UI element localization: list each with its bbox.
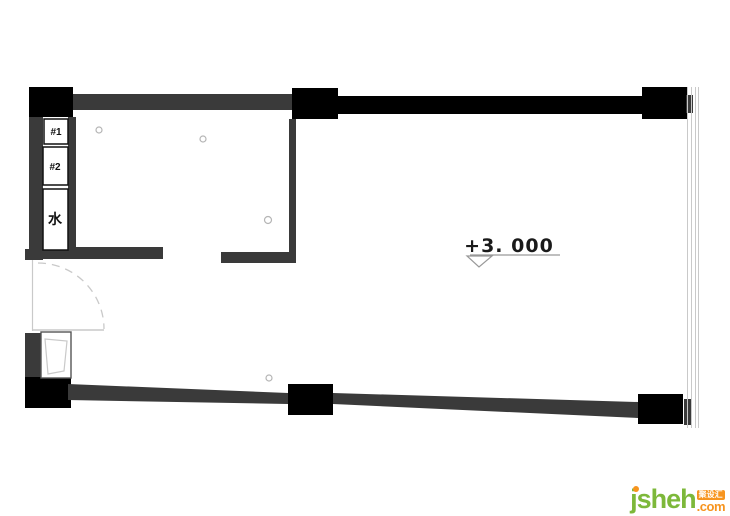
- column-bottom-left: [25, 375, 71, 408]
- door-swing-arc: [38, 263, 104, 329]
- fixture-leaf: [45, 339, 67, 374]
- compartment-group: #1 #2 水: [43, 119, 68, 250]
- wall-bottom-left-segment: [68, 384, 288, 404]
- wall-interior-right-stub: [221, 252, 296, 263]
- door-group: [32, 260, 104, 331]
- reference-circle: [96, 127, 102, 133]
- wall-left-upper: [29, 117, 43, 250]
- fixture-group: [41, 332, 71, 378]
- column-bottom-middle: [288, 384, 333, 415]
- column-bottom-right: [638, 394, 683, 424]
- column-top-right: [642, 87, 688, 119]
- brand-text: jsheh: [630, 484, 696, 514]
- wall-left-lower: [25, 333, 42, 377]
- compartment-label-2: #2: [49, 162, 61, 173]
- column-top-left: [29, 87, 73, 117]
- reference-circle: [200, 136, 206, 142]
- reference-circle: [266, 375, 272, 381]
- floor-plan-drawing: #1 #2 水 +3.: [0, 0, 730, 516]
- brand-suffix-stack: 聚设汇 .com: [697, 490, 725, 513]
- window-glazing-lines: [688, 87, 699, 428]
- site-watermark: jsheh 聚设汇 .com: [630, 486, 725, 513]
- wall-interior-vertical: [289, 119, 296, 263]
- wall-top-right-segment: [338, 96, 642, 114]
- compartment-label-1: #1: [50, 127, 62, 138]
- wall-top-left-segment: [73, 94, 292, 110]
- elevation-marker: +3. 000: [464, 235, 560, 267]
- compartment-label-water: 水: [48, 211, 63, 227]
- elevation-triangle-icon: [467, 256, 492, 267]
- reference-circle: [265, 217, 272, 224]
- wall-group: [25, 94, 693, 425]
- floor-plan-canvas: #1 #2 水 +3.: [0, 0, 730, 516]
- brand-domain-suffix: .com: [697, 500, 725, 513]
- column-top-middle: [292, 88, 338, 119]
- brand-wordmark: jsheh: [630, 486, 696, 513]
- wall-compartment-inner: [68, 117, 76, 250]
- wall-bottom-right-segment: [333, 393, 638, 418]
- elevation-label: +3. 000: [464, 235, 554, 257]
